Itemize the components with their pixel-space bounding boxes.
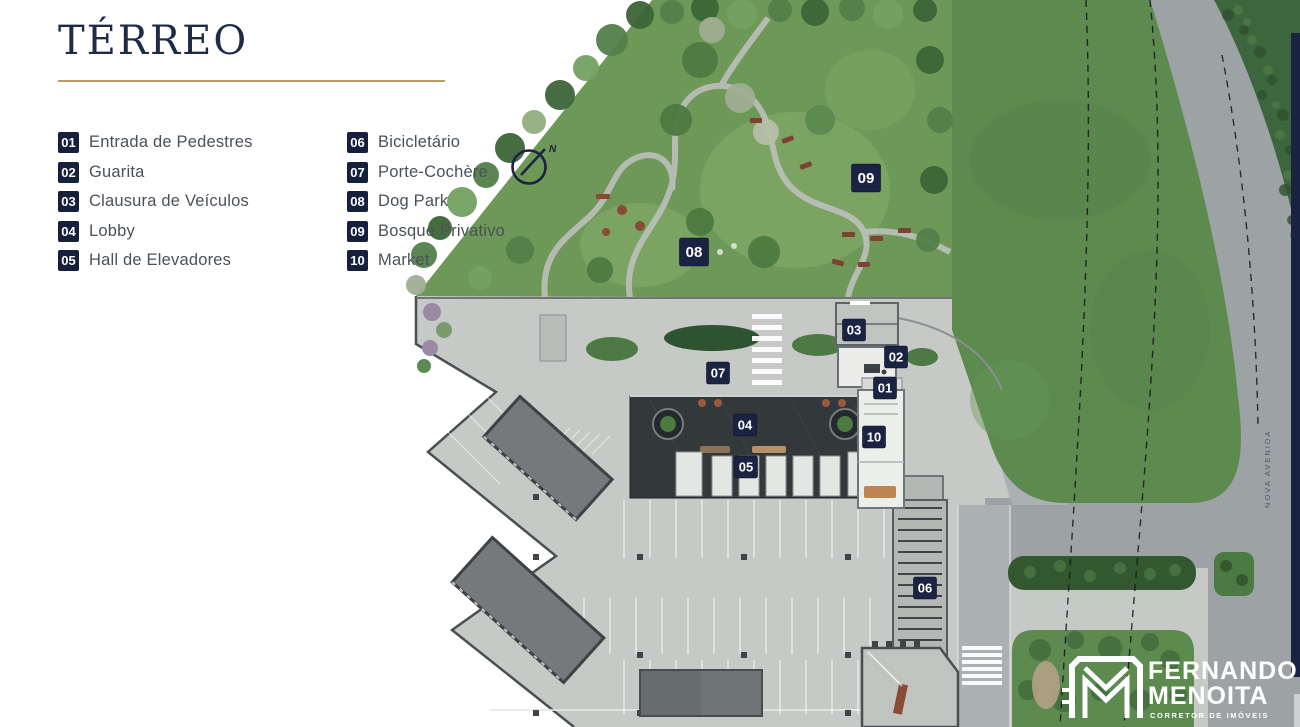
page-edge-sliver [1294,694,1300,727]
legend-badge-09: 09 [347,221,368,242]
map-marker-03: 03 [843,319,866,341]
legend-badge-08: 08 [347,191,368,212]
legend-item-07: 07 Porte-Cochère [347,162,505,183]
svg-text:07: 07 [711,366,725,381]
legend-item-02: 02 Guarita [58,162,270,183]
svg-text:09: 09 [858,170,875,187]
legend-label-07: Porte-Cochère [378,163,488,182]
legend-badge-03: 03 [58,191,79,212]
legend-item-09: 09 Bosque Privativo [347,221,505,242]
legend-item-08: 08 Dog Park [347,191,505,212]
legend-item-06: 06 Bicicletário [347,132,505,153]
map-marker-07: 07 [707,362,730,384]
legend-badge-02: 02 [58,162,79,183]
svg-text:08: 08 [686,244,703,261]
legend-badge-07: 07 [347,162,368,183]
title-underline [58,80,445,82]
svg-text:05: 05 [739,460,753,475]
legend-label-10: Market [378,251,430,270]
map-marker-08: 08 [680,238,709,266]
map-marker-09: 09 [852,164,881,192]
site-plan-illustration: NOVA AVENIDA 01 02 03 04 05 06 07 08 09 … [0,0,1300,727]
map-marker-10: 10 [863,426,886,448]
legend-column-1: 01 Entrada de Pedestres 02 Guarita 03 Cl… [58,132,270,271]
market-room [858,390,904,508]
svg-text:02: 02 [889,350,903,365]
generator-room [640,670,762,716]
svg-text:03: 03 [847,323,861,338]
map-marker-06: 06 [914,577,937,599]
map-marker-01: 01 [874,377,897,399]
svg-text:01: 01 [878,381,892,396]
legend-column-2: 06 Bicicletário 07 Porte-Cochère 08 Dog … [347,132,505,271]
page-title: TÉRREO [58,18,445,64]
legend-label-05: Hall de Elevadores [89,251,231,270]
logo-line1: FERNANDO [1148,657,1298,685]
legend-item-10: 10 Market [347,250,505,271]
legend-item-03: 03 Clausura de Veículos [58,191,270,212]
legend-item-04: 04 Lobby [58,221,270,242]
legend-label-02: Guarita [89,163,145,182]
map-marker-02: 02 [885,346,908,368]
svg-text:06: 06 [918,581,932,596]
building [630,390,904,508]
svg-text:10: 10 [867,430,881,445]
legend-badge-01: 01 [58,132,79,153]
service-entry [862,641,958,727]
north-label: N [549,144,557,155]
legend-label-08: Dog Park [378,192,448,211]
logo-line2: MENOITA [1148,682,1268,710]
legend-item-05: 05 Hall de Elevadores [58,250,270,271]
legend-badge-04: 04 [58,221,79,242]
logo-tagline: CORRETOR DE IMÓVEIS [1150,711,1269,720]
floorplan-page: NOVA AVENIDA 01 02 03 04 05 06 07 08 09 … [0,0,1300,727]
svg-text:04: 04 [738,418,753,433]
legend: 01 Entrada de Pedestres 02 Guarita 03 Cl… [58,132,505,271]
street-label: NOVA AVENIDA [1263,430,1272,508]
map-marker-05: 05 [735,456,758,478]
legend-item-01: 01 Entrada de Pedestres [58,132,270,153]
legend-label-04: Lobby [89,222,135,241]
legend-label-09: Bosque Privativo [378,222,505,241]
legend-badge-05: 05 [58,250,79,271]
legend-badge-06: 06 [347,132,368,153]
legend-label-06: Bicicletário [378,133,460,152]
map-marker-04: 04 [734,414,757,436]
legend-badge-10: 10 [347,250,368,271]
legend-label-01: Entrada de Pedestres [89,133,253,152]
page-edge-bar [1291,33,1300,677]
legend-label-03: Clausura de Veículos [89,192,249,211]
